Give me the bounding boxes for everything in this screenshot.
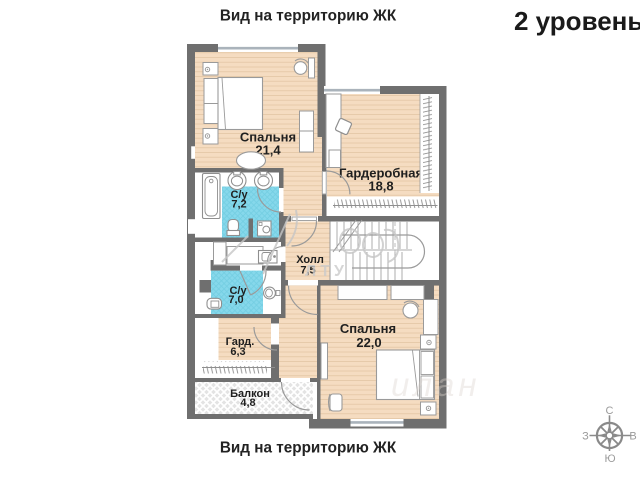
svg-text:Вид на территорию ЖК: Вид на территорию ЖК [220,439,397,456]
svg-text:Ю: Ю [604,453,615,465]
svg-text:В: В [629,431,636,443]
svg-text:18,8: 18,8 [368,179,393,194]
svg-text:2 уровень: 2 уровень [514,6,640,36]
svg-text:С: С [606,405,614,417]
svg-text:22,0: 22,0 [356,335,381,350]
svg-text:Спальня: Спальня [340,321,396,336]
svg-text:7,0: 7,0 [228,294,243,306]
svg-text:4,8: 4,8 [240,397,255,409]
svg-text:ЛТУ: ЛТУ [305,263,348,280]
svg-text:7,2: 7,2 [231,199,246,211]
svg-text:илан: илан [391,366,480,403]
svg-text:З: З [582,431,589,443]
svg-text:6,3: 6,3 [230,346,245,358]
svg-text:Вид на территорию ЖК: Вид на территорию ЖК [220,8,397,25]
